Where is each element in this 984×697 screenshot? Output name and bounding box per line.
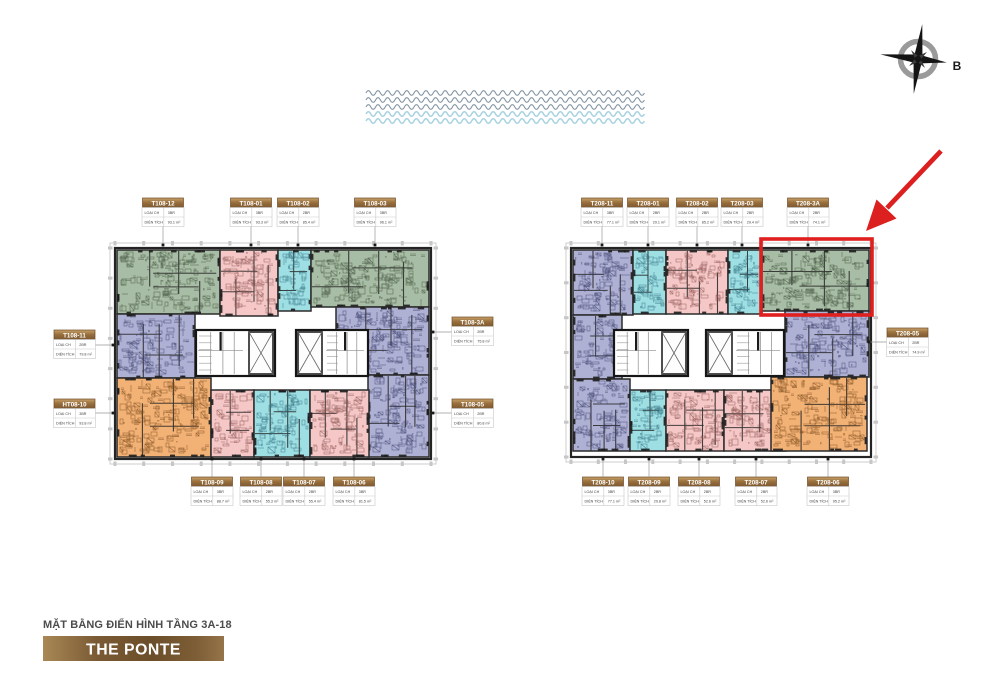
svg-text:96.1 m²: 96.1 m² — [380, 220, 393, 224]
svg-text:LOẠI CH: LOẠI CH — [194, 490, 209, 494]
svg-text:52.6 m²: 52.6 m² — [704, 499, 717, 503]
svg-text:3BR: 3BR — [380, 211, 388, 215]
svg-text:T108-08: T108-08 — [249, 479, 273, 486]
svg-text:T208-3A: T208-3A — [796, 200, 821, 207]
svg-text:LOẠI CH: LOẠI CH — [810, 490, 825, 494]
svg-text:3BR: 3BR — [608, 490, 616, 494]
svg-text:LOẠI CH: LOẠI CH — [889, 341, 904, 345]
svg-text:2BR: 2BR — [813, 211, 821, 215]
svg-text:DIỆN TÍCH: DIỆN TÍCH — [631, 498, 650, 503]
svg-text:LOẠI CH: LOẠI CH — [585, 490, 600, 494]
svg-text:T208-03: T208-03 — [730, 200, 754, 207]
svg-text:DIỆN TÍCH: DIỆN TÍCH — [56, 420, 75, 425]
svg-text:3BR: 3BR — [256, 211, 264, 215]
svg-text:LOẠI CH: LOẠI CH — [145, 211, 160, 215]
svg-text:2BR: 2BR — [266, 490, 274, 494]
svg-text:T108-05: T108-05 — [461, 401, 485, 408]
svg-text:2BR: 2BR — [747, 211, 755, 215]
svg-text:T208-06: T208-06 — [816, 479, 840, 486]
svg-text:T108-03: T108-03 — [363, 200, 387, 207]
svg-text:74.1 m²: 74.1 m² — [813, 220, 826, 224]
svg-text:DIỆN TÍCH: DIỆN TÍCH — [280, 219, 299, 224]
svg-text:2BR: 2BR — [477, 412, 485, 416]
svg-text:2BR: 2BR — [477, 330, 485, 334]
svg-text:T208-07: T208-07 — [744, 479, 768, 486]
svg-text:LOẠI CH: LOẠI CH — [724, 211, 739, 215]
svg-text:3BR: 3BR — [607, 211, 615, 215]
svg-text:85.2 m²: 85.2 m² — [702, 220, 715, 224]
svg-text:52.6 m²: 52.6 m² — [761, 499, 774, 503]
svg-text:95.2 m²: 95.2 m² — [833, 499, 846, 503]
svg-text:T108-11: T108-11 — [63, 332, 86, 339]
svg-text:T208-10: T208-10 — [591, 479, 615, 486]
svg-text:DIỆN TÍCH: DIỆN TÍCH — [889, 349, 908, 354]
svg-text:2BR: 2BR — [303, 211, 311, 215]
svg-text:LOẠI CH: LOẠI CH — [738, 490, 753, 494]
svg-text:88.7 m²: 88.7 m² — [217, 499, 230, 503]
svg-text:93.1 m²: 93.1 m² — [168, 220, 181, 224]
svg-text:T208-08: T208-08 — [687, 479, 711, 486]
svg-text:LOẠI CH: LOẠI CH — [630, 211, 645, 215]
svg-text:77.1 m²: 77.1 m² — [608, 499, 621, 503]
svg-text:2BR: 2BR — [654, 490, 662, 494]
svg-text:55.4 m²: 55.4 m² — [309, 499, 322, 503]
svg-text:B: B — [953, 59, 962, 73]
svg-text:DIỆN TÍCH: DIỆN TÍCH — [233, 219, 252, 224]
svg-text:DIỆN TÍCH: DIỆN TÍCH — [357, 219, 376, 224]
svg-text:T108-06: T108-06 — [342, 479, 366, 486]
svg-text:2BR: 2BR — [653, 211, 661, 215]
svg-text:93.8 m²: 93.8 m² — [79, 421, 92, 425]
svg-text:HT08-10: HT08-10 — [62, 401, 87, 408]
svg-text:T108-3A: T108-3A — [460, 319, 485, 326]
svg-text:DIỆN TÍCH: DIỆN TÍCH — [336, 498, 355, 503]
svg-text:LOẠI CH: LOẠI CH — [679, 211, 694, 215]
svg-text:85.4 m²: 85.4 m² — [303, 220, 316, 224]
svg-text:T208-09: T208-09 — [637, 479, 661, 486]
svg-text:29.4 m²: 29.4 m² — [747, 220, 760, 224]
svg-text:2BR: 2BR — [79, 343, 87, 347]
svg-text:DIỆN TÍCH: DIỆN TÍCH — [790, 219, 809, 224]
svg-text:LOẠI CH: LOẠI CH — [280, 211, 295, 215]
svg-text:DIỆN TÍCH: DIỆN TÍCH — [194, 498, 213, 503]
svg-text:DIỆN TÍCH: DIỆN TÍCH — [454, 420, 473, 425]
svg-text:LOẠI CH: LOẠI CH — [357, 211, 372, 215]
svg-text:LOẠI CH: LOẠI CH — [631, 490, 646, 494]
svg-text:T208-11: T208-11 — [591, 200, 614, 207]
svg-text:DIỆN TÍCH: DIỆN TÍCH — [738, 498, 757, 503]
svg-text:29.8 m²: 29.8 m² — [654, 499, 667, 503]
svg-text:93.3 m²: 93.3 m² — [256, 220, 269, 224]
svg-text:3BR: 3BR — [359, 490, 367, 494]
svg-text:LOẠI CH: LOẠI CH — [790, 211, 805, 215]
svg-text:2BR: 2BR — [761, 490, 769, 494]
svg-text:MẶT BẰNG ĐIỂN HÌNH TẦNG 3A-18: MẶT BẰNG ĐIỂN HÌNH TẦNG 3A-18 — [43, 618, 232, 631]
svg-text:2BR: 2BR — [309, 490, 317, 494]
svg-text:LOẠI CH: LOẠI CH — [454, 330, 469, 334]
svg-text:DIỆN TÍCH: DIỆN TÍCH — [724, 219, 743, 224]
svg-text:LOẠI CH: LOẠI CH — [454, 412, 469, 416]
svg-text:T208-01: T208-01 — [636, 200, 660, 207]
svg-text:2BR: 2BR — [702, 211, 710, 215]
svg-text:DIỆN TÍCH: DIỆN TÍCH — [810, 498, 829, 503]
svg-text:DIỆN TÍCH: DIỆN TÍCH — [630, 219, 649, 224]
svg-text:3BR: 3BR — [217, 490, 225, 494]
svg-text:LOẠI CH: LOẠI CH — [56, 412, 71, 416]
svg-text:T208-02: T208-02 — [685, 200, 709, 207]
svg-text:T108-02: T108-02 — [286, 200, 310, 207]
svg-text:T108-01: T108-01 — [239, 200, 263, 207]
svg-text:LOẠI CH: LOẠI CH — [286, 490, 301, 494]
svg-text:T108-12: T108-12 — [151, 200, 175, 207]
svg-text:DIỆN TÍCH: DIỆN TÍCH — [145, 219, 164, 224]
svg-text:29.1 m²: 29.1 m² — [653, 220, 666, 224]
svg-text:DIỆN TÍCH: DIỆN TÍCH — [56, 351, 75, 356]
svg-text:3BR: 3BR — [79, 412, 87, 416]
svg-text:3BR: 3BR — [833, 490, 841, 494]
svg-text:LOẠI CH: LOẠI CH — [243, 490, 258, 494]
svg-text:55.3 m²: 55.3 m² — [266, 499, 279, 503]
svg-text:3BR: 3BR — [168, 211, 176, 215]
svg-text:80.8 m²: 80.8 m² — [477, 421, 490, 425]
svg-text:LOẠI CH: LOẠI CH — [584, 211, 599, 215]
svg-text:T108-07: T108-07 — [292, 479, 316, 486]
svg-text:T108-09: T108-09 — [200, 479, 224, 486]
svg-text:81.5 m²: 81.5 m² — [359, 499, 372, 503]
svg-text:LOẠI CH: LOẠI CH — [233, 211, 248, 215]
svg-text:DIỆN TÍCH: DIỆN TÍCH — [679, 219, 698, 224]
svg-text:THE PONTE: THE PONTE — [86, 642, 181, 659]
svg-text:DIỆN TÍCH: DIỆN TÍCH — [584, 219, 603, 224]
svg-text:LOẠI CH: LOẠI CH — [681, 490, 696, 494]
svg-text:75.8 m²: 75.8 m² — [477, 339, 490, 343]
svg-text:79.8 m²: 79.8 m² — [79, 352, 92, 356]
svg-text:DIỆN TÍCH: DIỆN TÍCH — [243, 498, 262, 503]
svg-text:2BR: 2BR — [912, 341, 920, 345]
svg-text:74.9 m²: 74.9 m² — [912, 350, 925, 354]
svg-text:DIỆN TÍCH: DIỆN TÍCH — [681, 498, 700, 503]
svg-text:LOẠI CH: LOẠI CH — [336, 490, 351, 494]
svg-text:DIỆN TÍCH: DIỆN TÍCH — [286, 498, 305, 503]
svg-text:DIỆN TÍCH: DIỆN TÍCH — [454, 338, 473, 343]
svg-text:LOẠI CH: LOẠI CH — [56, 343, 71, 347]
svg-text:DIỆN TÍCH: DIỆN TÍCH — [585, 498, 604, 503]
svg-text:77.1 m²: 77.1 m² — [607, 220, 620, 224]
svg-text:2BR: 2BR — [704, 490, 712, 494]
svg-text:T208-05: T208-05 — [896, 330, 920, 337]
